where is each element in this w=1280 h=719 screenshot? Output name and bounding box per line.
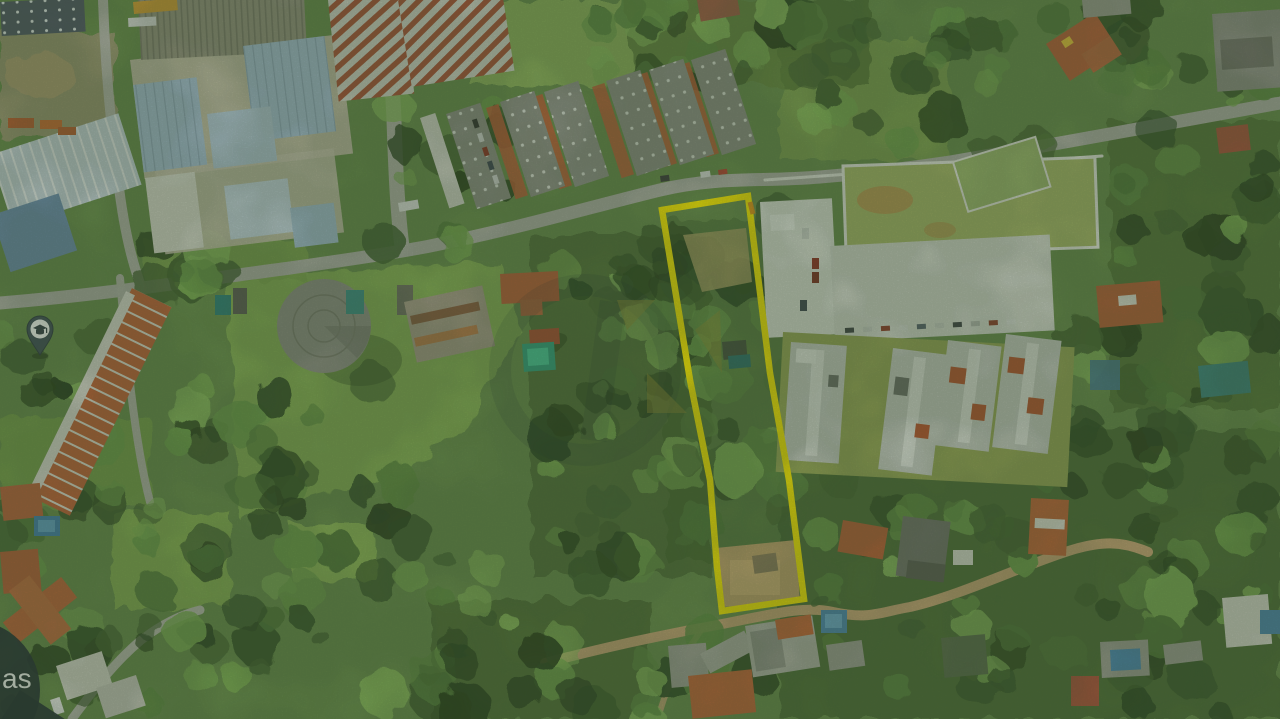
aerial-photo-canvas: as bbox=[0, 0, 1280, 719]
aerial-photo: as bbox=[0, 0, 1280, 719]
grain-overlay bbox=[0, 0, 1280, 719]
